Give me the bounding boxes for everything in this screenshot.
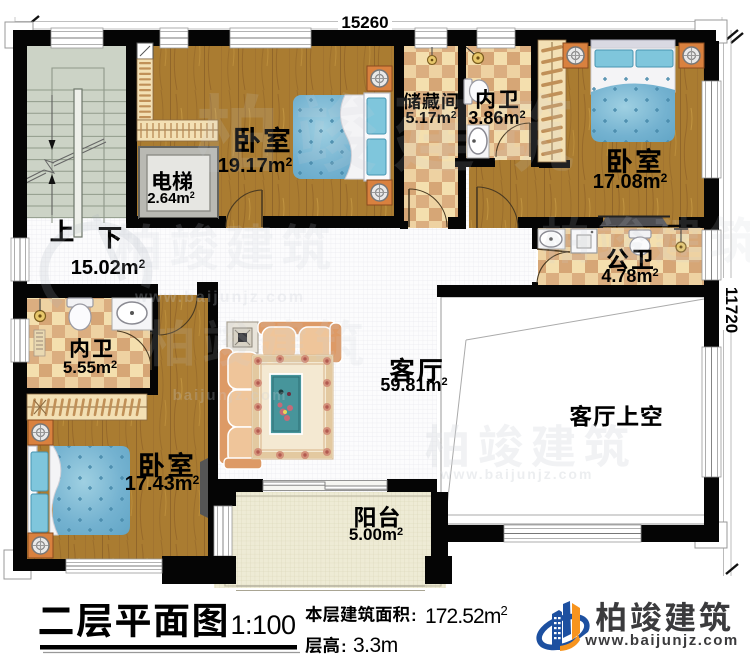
svg-text:www.baijunjz.com: www.baijunjz.com [440,466,594,482]
svg-text::: : [341,637,347,656]
svg-text:15260: 15260 [341,13,388,32]
svg-text:5.00m2: 5.00m2 [349,525,403,544]
svg-text:baijunjz.com: baijunjz.com [173,387,288,404]
svg-text:17.08m2: 17.08m2 [593,171,668,193]
svg-text:www.baijunjz.com: www.baijunjz.com [134,289,305,306]
svg-text:59.81m2: 59.81m2 [380,375,447,395]
svg-text:3.3m: 3.3m [353,634,398,657]
svg-text:www.baijunjz.com: www.baijunjz.com [584,632,738,649]
svg-text:1:100: 1:100 [230,610,295,640]
svg-text:4.78m2: 4.78m2 [601,266,658,286]
svg-text:17.43m2: 17.43m2 [125,473,200,495]
svg-text:11720: 11720 [722,287,741,333]
svg-text:2.64m2: 2.64m2 [147,190,195,207]
svg-text::: : [411,606,417,625]
svg-text:172.52m2: 172.52m2 [425,603,507,628]
svg-text:5.55m2: 5.55m2 [63,358,117,377]
